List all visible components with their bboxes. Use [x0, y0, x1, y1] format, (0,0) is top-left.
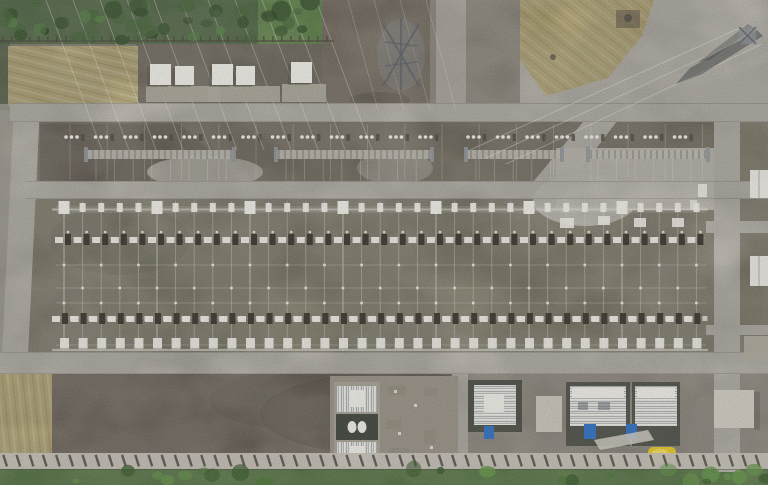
aerial-scene [0, 0, 768, 485]
substation-aerial-photo [0, 0, 768, 485]
fine-grain-light [0, 0, 768, 485]
